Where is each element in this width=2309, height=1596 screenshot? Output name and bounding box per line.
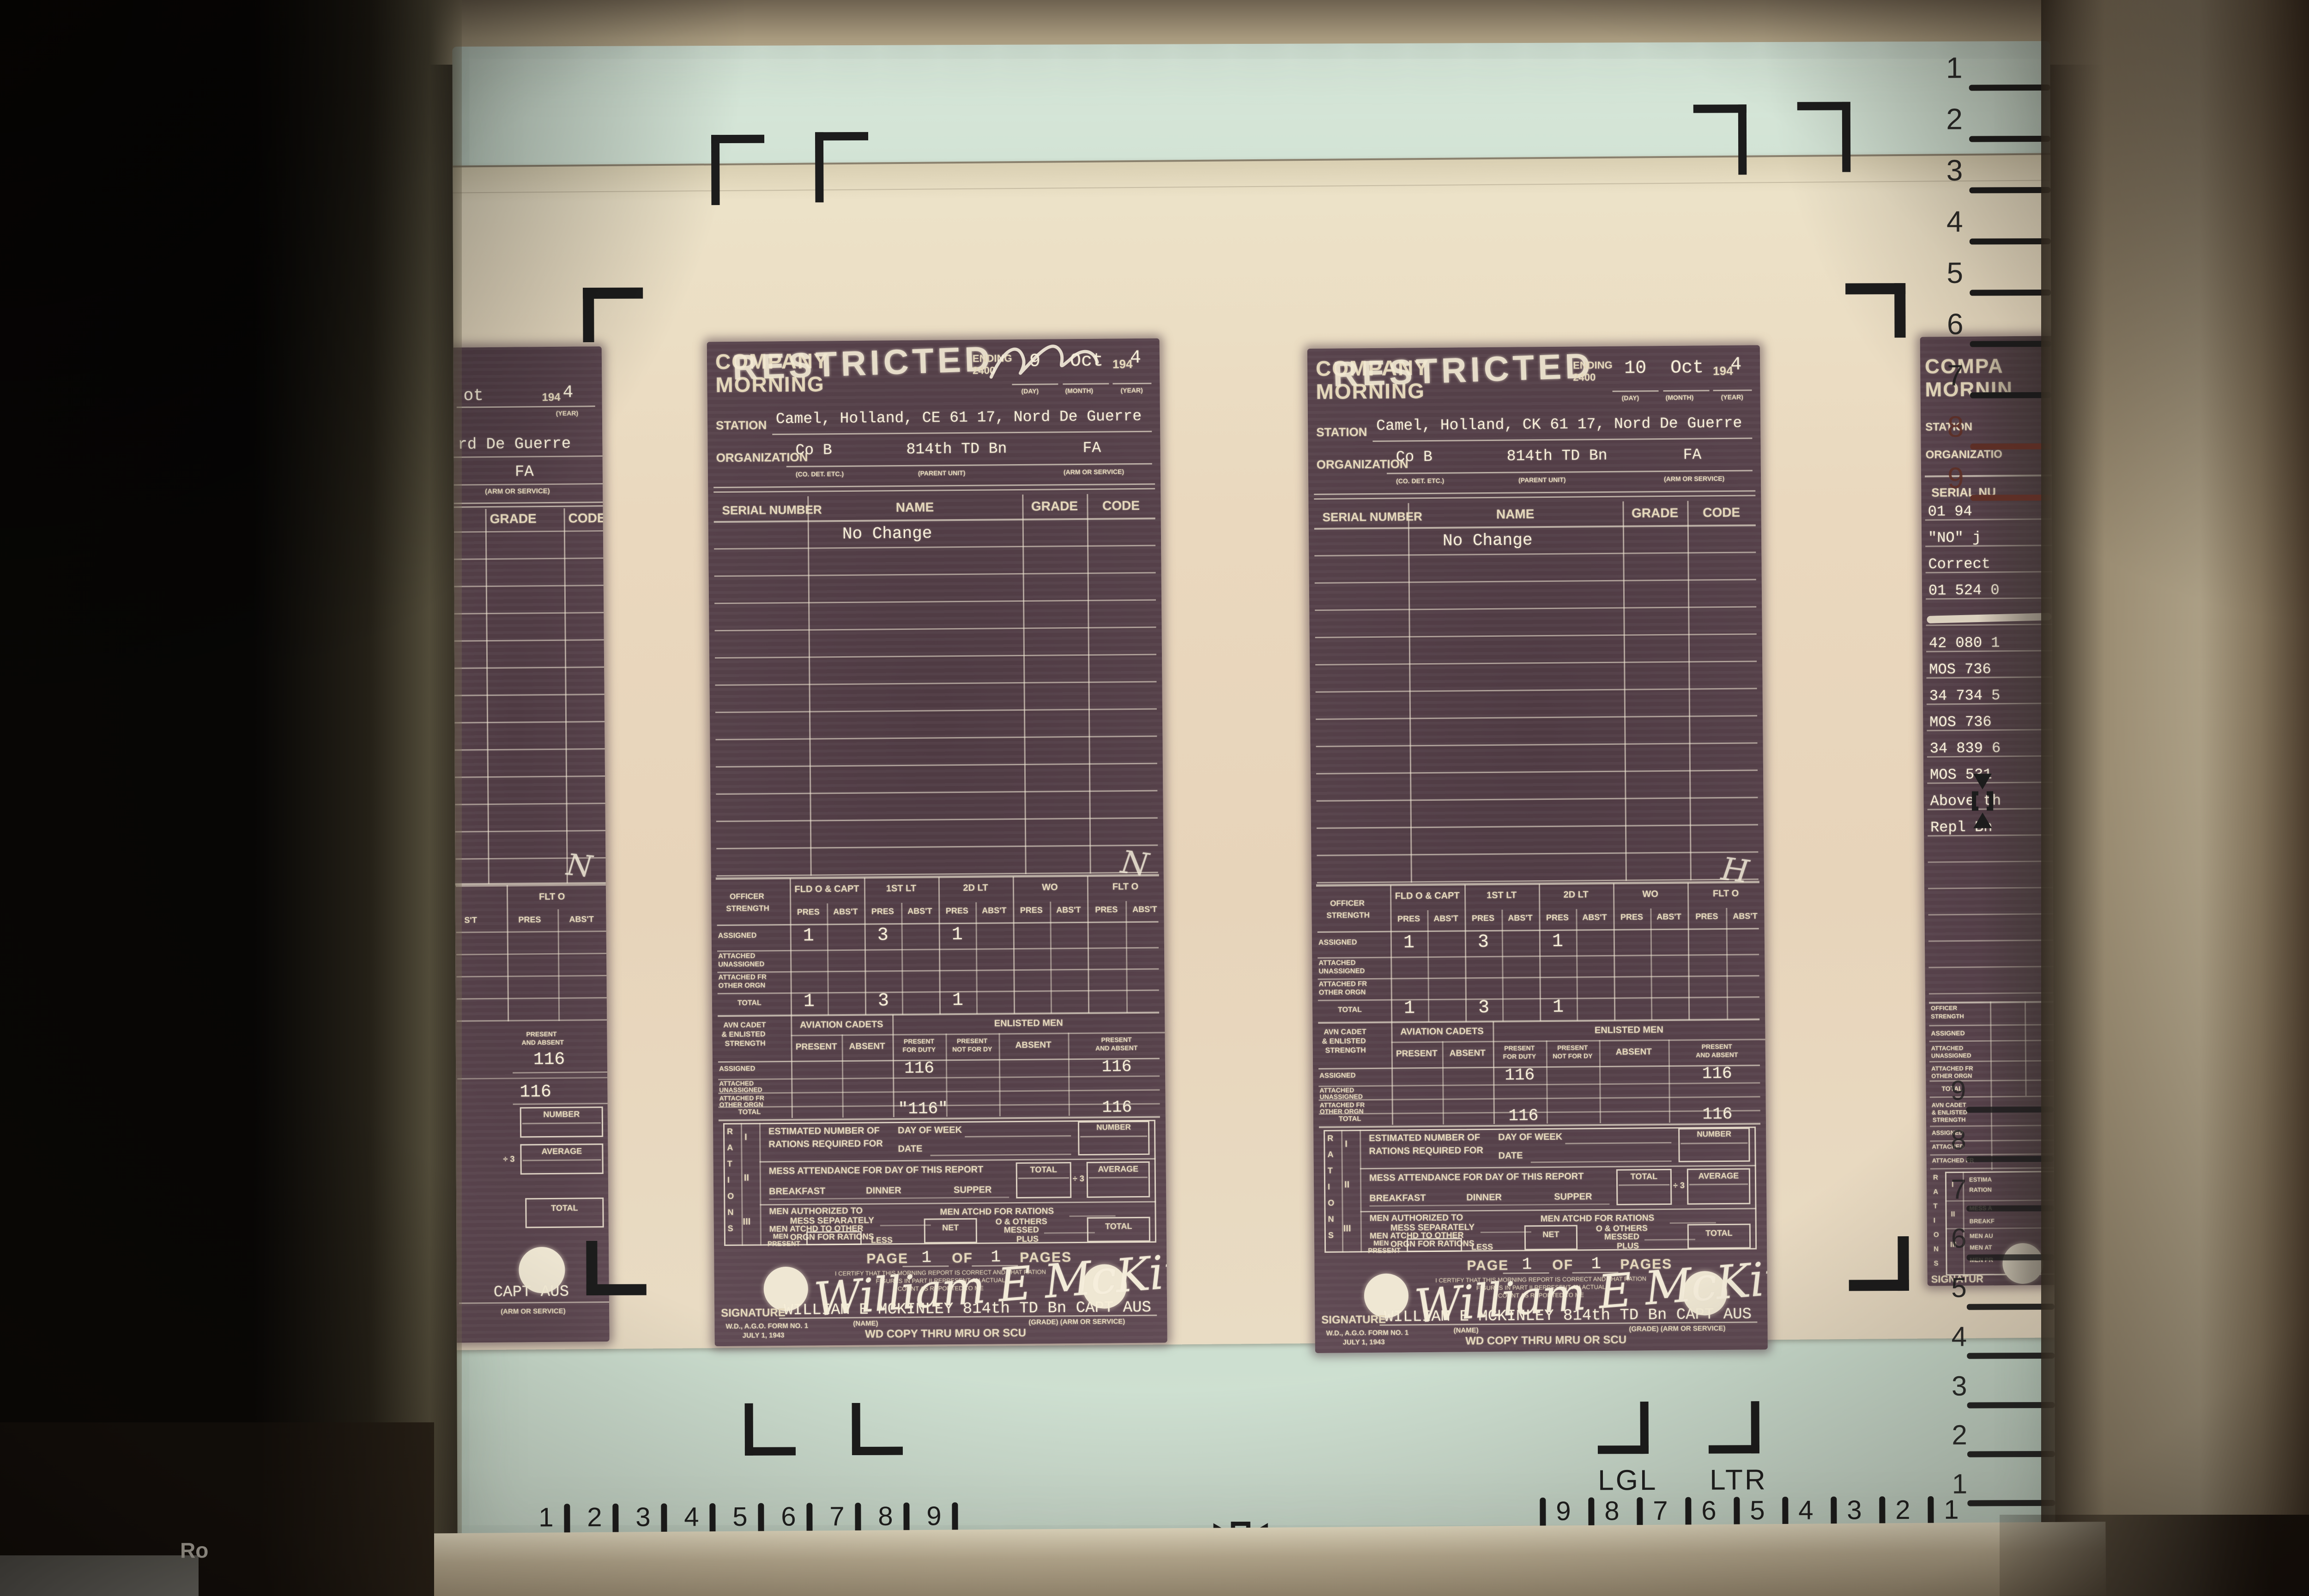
- frame-bracket-bottom-lgl-2: [852, 1403, 903, 1455]
- ruler-right-top-tick: [1971, 495, 2052, 501]
- ruler-right-top-tick: [1970, 392, 2051, 399]
- centering-arrow-up: [1973, 812, 1992, 828]
- ruler-right-bottom-number: 5: [1925, 1272, 1967, 1304]
- ruler-right-top-tick: [1969, 85, 2050, 91]
- ruler-right-top-number: 1: [1921, 51, 1962, 85]
- ruler-right-bottom-number: 7: [1925, 1173, 1966, 1205]
- ruler-right-top-number: 8: [1922, 410, 1964, 444]
- housing-gray-patch: [0, 1555, 199, 1596]
- centering-mark-vertical: [1972, 774, 1993, 828]
- ruler-right-bottom-number: 2: [1926, 1419, 1967, 1451]
- ruler-right-bottom-number: 4: [1925, 1321, 1967, 1353]
- format-label-lgl: LGL: [1598, 1464, 1657, 1497]
- ruler-right-top-tick: [1970, 443, 2051, 450]
- centering-stub: [1246, 1522, 1250, 1528]
- frame-corner-mid-tl: [583, 288, 643, 342]
- microfilm-reader-photo: ot1944(YEAR)rd De GuerreFA(ARM OR SERVIC…: [0, 0, 2309, 1596]
- ruler-bottom-right-number: 1: [1935, 1494, 1967, 1525]
- ruler-right-bottom-number: 9: [1924, 1075, 1966, 1106]
- frame-bracket-top-4: [1797, 102, 1851, 172]
- ruler-right-top-tick: [1970, 238, 2051, 245]
- frame-bracket-bottom-lgl-1: [745, 1403, 796, 1455]
- ruler-right-bottom-number: 3: [1925, 1370, 1967, 1402]
- frame-corner-mid-br: [1849, 1236, 1909, 1291]
- ruler-right-bottom-number: 6: [1925, 1222, 1966, 1254]
- ruler-right-top-tick: [1970, 290, 2051, 296]
- centering-stub: [1987, 791, 1993, 795]
- ruler-right-top-number: 5: [1922, 256, 1963, 290]
- housing-label: Ro: [180, 1538, 208, 1563]
- ruler-bottom-left-number: 4: [675, 1501, 707, 1532]
- housing-bottom-right: [2000, 1515, 2309, 1596]
- format-label-ltr: LTR: [1710, 1463, 1767, 1496]
- ruler-bottom-right-number: 3: [1838, 1494, 1870, 1525]
- ruler-bottom-left-number: 3: [627, 1502, 659, 1533]
- frame-bracket-top-1: [711, 135, 765, 205]
- centering-stub: [1987, 806, 1993, 810]
- centering-arrow-down: [1973, 774, 1992, 789]
- ruler-bottom-right-number: 5: [1741, 1495, 1773, 1526]
- ruler-bottom-left-number: 6: [772, 1501, 804, 1532]
- ruler-right-bottom-tick: [1966, 1106, 2054, 1113]
- ruler-bottom-right-number: 8: [1596, 1495, 1628, 1526]
- ruler-bottom-left-number: 2: [578, 1502, 610, 1533]
- ruler-bottom-right-number: 2: [1886, 1494, 1919, 1525]
- ruler-right-top-number: 6: [1922, 307, 1963, 341]
- ruler-right-top-tick: [1969, 136, 2050, 142]
- ruler-right-top-number: 3: [1921, 153, 1963, 187]
- ruler-right-top-number: 4: [1922, 205, 1963, 239]
- ruler-right-top-tick: [1969, 187, 2050, 193]
- frame-bracket-top-3: [1693, 104, 1747, 175]
- frame-bracket-top-2: [815, 132, 869, 202]
- bezel-bottom: [397, 1522, 2106, 1596]
- bezel-left: [0, 0, 462, 1596]
- ruler-bottom-left-number: 1: [530, 1502, 562, 1533]
- bezel-right: [2041, 0, 2309, 1596]
- frame-corner-mid-tr: [1845, 283, 1905, 338]
- ruler-bottom-right-number: 9: [1547, 1496, 1579, 1527]
- ruler-right-top-number: 2: [1921, 102, 1963, 136]
- ruler-right-top-number: 9: [1922, 461, 1964, 495]
- ruler-right-top-number: 7: [1922, 358, 1964, 393]
- ruler-bottom-right-number: 4: [1789, 1495, 1822, 1526]
- ruler-bottom-left-number: 9: [918, 1500, 950, 1531]
- frame-corner-mid-bl: [586, 1241, 646, 1295]
- ruler-right-bottom-number: 8: [1925, 1124, 1966, 1156]
- ruler-bottom-right-number: 7: [1644, 1495, 1676, 1526]
- ruler-bottom-left-number: 8: [869, 1501, 901, 1532]
- ruler-bottom-right-number: 6: [1692, 1495, 1725, 1526]
- ruler-bottom-left-number: 7: [821, 1501, 853, 1532]
- centering-stub: [1972, 807, 1978, 811]
- screen-glass-marks: 123456789987654321123456789987654321: [452, 41, 2055, 1548]
- frame-bracket-bottom-ltr-1: [1598, 1402, 1649, 1454]
- reader-screen: ot1944(YEAR)rd De GuerreFA(ARM OR SERVIC…: [452, 41, 2055, 1548]
- frame-bracket-bottom-ltr-2: [1709, 1401, 1759, 1453]
- ruler-bottom-left-number: 5: [724, 1501, 756, 1532]
- ruler-right-top-tick: [1970, 341, 2051, 347]
- centering-stub: [1972, 792, 1978, 796]
- centering-stub: [1231, 1522, 1235, 1528]
